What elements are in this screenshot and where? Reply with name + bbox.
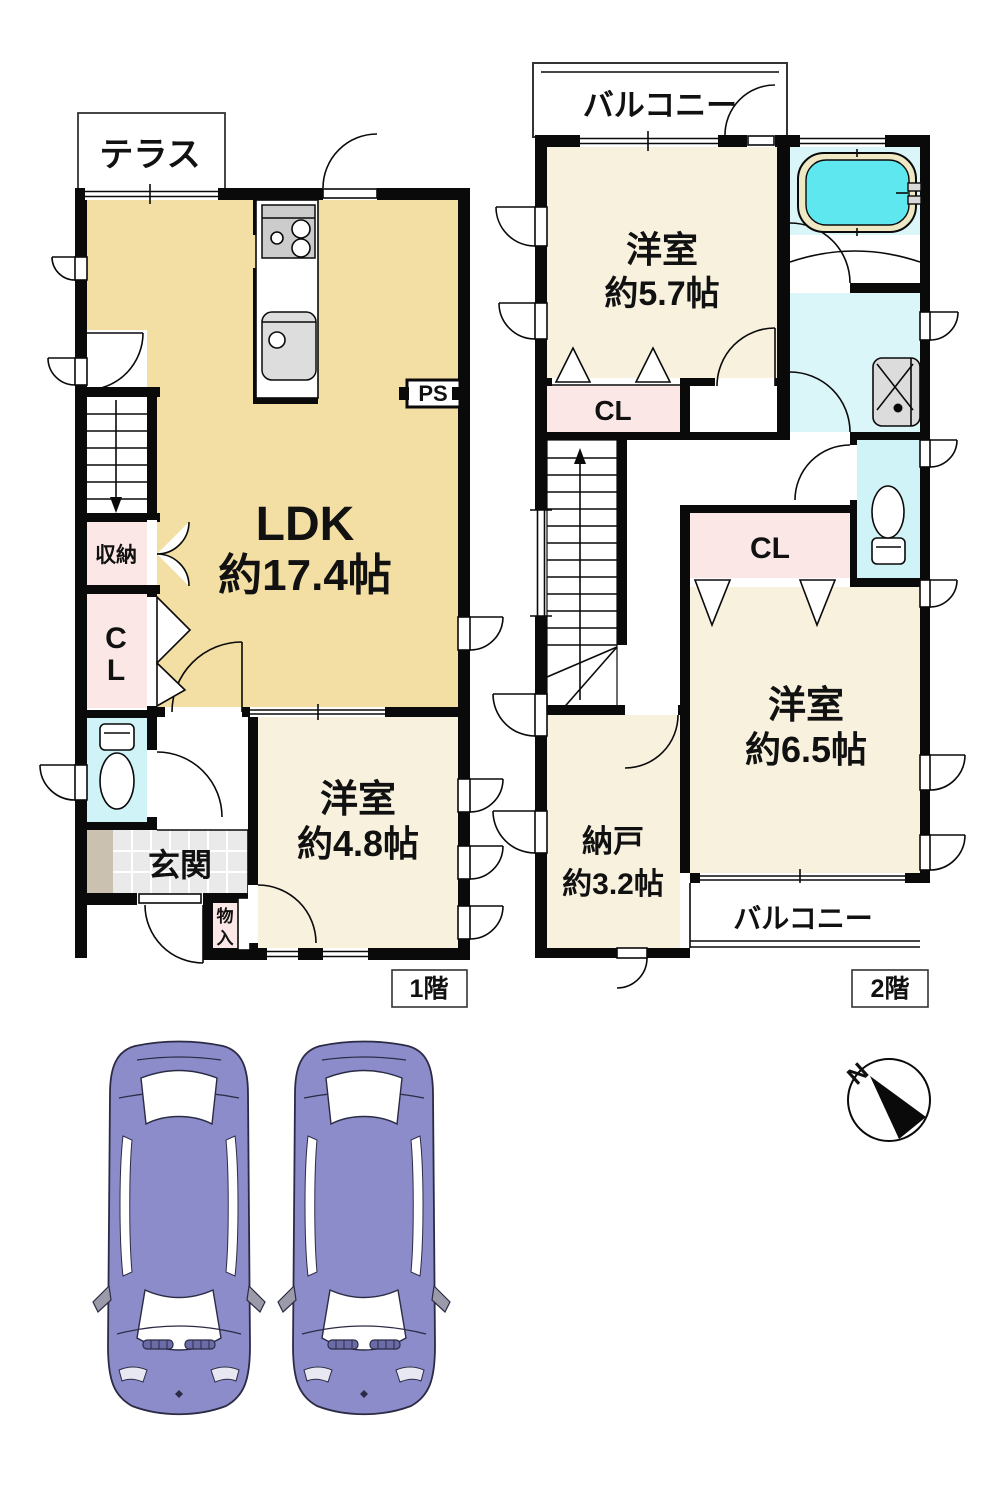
terrace-label: テラス (99, 136, 200, 174)
closet-1f-label-c: C (105, 622, 127, 655)
western-room-48-label: 洋室 (320, 778, 396, 821)
ps-label: PS (418, 381, 447, 406)
closet-1f-label-l: L (107, 654, 125, 687)
small-storage-label-1: 物 (217, 906, 234, 926)
floorplan-drawing: テラス (0, 0, 1004, 1485)
closet-2f-top-label: CL (594, 395, 631, 426)
floor1-tag: 1階 (392, 970, 467, 1007)
western-room-65-size: 約6.5帖 (745, 729, 867, 770)
kitchen-counter (256, 200, 318, 398)
floor1-plan: テラス (40, 113, 503, 1007)
stairs-2f (547, 440, 617, 712)
small-storage-label-2: 入 (217, 929, 234, 948)
compass: N (842, 1058, 930, 1141)
svg-text:2階: 2階 (871, 975, 910, 1003)
floor2-plan: バルコニー (493, 63, 965, 1007)
ldk-size-label: 約17.4帖 (218, 551, 392, 600)
balcony-bottom: バルコニー (690, 883, 920, 948)
parking-cars (93, 1042, 450, 1415)
bathtub-icon (798, 149, 921, 236)
western-room-65-label: 洋室 (768, 684, 844, 727)
entrance-label: 玄関 (148, 847, 212, 883)
storeroom-size: 約3.2帖 (562, 868, 664, 901)
stove-icon (262, 205, 315, 258)
stairs-up-arrow (574, 448, 586, 464)
closet-2f-mid-label: CL (750, 532, 790, 565)
balcony-bottom-label: バルコニー (733, 903, 872, 934)
toilet-icon-2f (872, 486, 905, 564)
western-room-48-size: 約4.8帖 (297, 823, 419, 864)
floorplan-page: テラス (0, 0, 1004, 1485)
storage-label: 収納 (95, 543, 137, 567)
balcony-top: バルコニー (533, 63, 787, 137)
svg-text:1階: 1階 (410, 975, 449, 1003)
entrance-porch (87, 830, 113, 893)
sink-icon (262, 312, 316, 380)
western-room-57-label: 洋室 (626, 229, 698, 270)
car-2 (278, 1042, 450, 1415)
storeroom-label: 納戸 (582, 824, 644, 859)
ps-shaft: PS (399, 380, 462, 407)
bath-deck (790, 235, 920, 283)
ldk-label: LDK (256, 498, 355, 551)
balcony-top-label: バルコニー (583, 88, 737, 123)
car-1 (93, 1042, 265, 1415)
western-room-57-size: 約5.7帖 (604, 275, 719, 313)
washbasin-icon (873, 358, 920, 426)
terrace: テラス (78, 113, 225, 190)
floor2-tag: 2階 (852, 970, 928, 1007)
toilet-icon-1f (100, 724, 134, 809)
